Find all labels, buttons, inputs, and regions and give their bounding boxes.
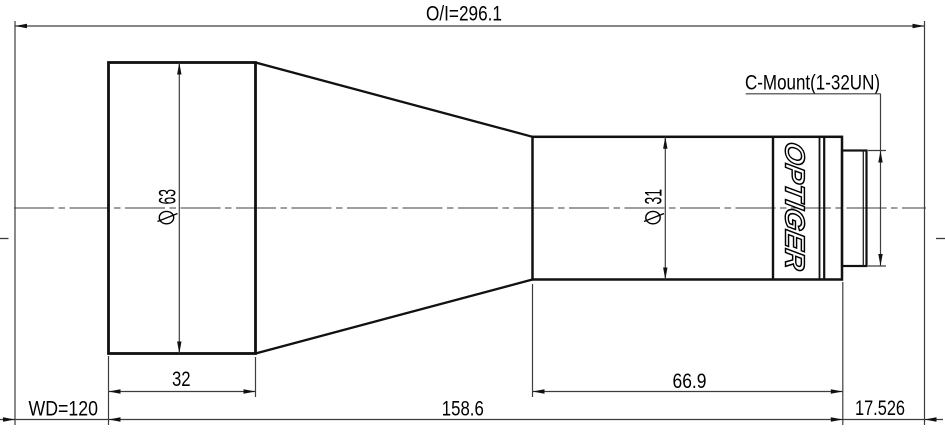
svg-text:32: 32 [172, 367, 191, 391]
svg-text:17.526: 17.526 [855, 396, 905, 420]
svg-text:O/I=296.1: O/I=296.1 [426, 3, 502, 26]
svg-text:63: 63 [155, 189, 182, 205]
svg-text:66.9: 66.9 [673, 369, 707, 393]
svg-text:158.6: 158.6 [442, 397, 484, 421]
svg-text:C-Mount(1-32UN): C-Mount(1-32UN) [745, 71, 880, 95]
svg-text:31: 31 [641, 189, 668, 205]
svg-text:OPTIGER: OPTIGER [779, 140, 811, 273]
svg-text:WD=120: WD=120 [29, 397, 99, 421]
